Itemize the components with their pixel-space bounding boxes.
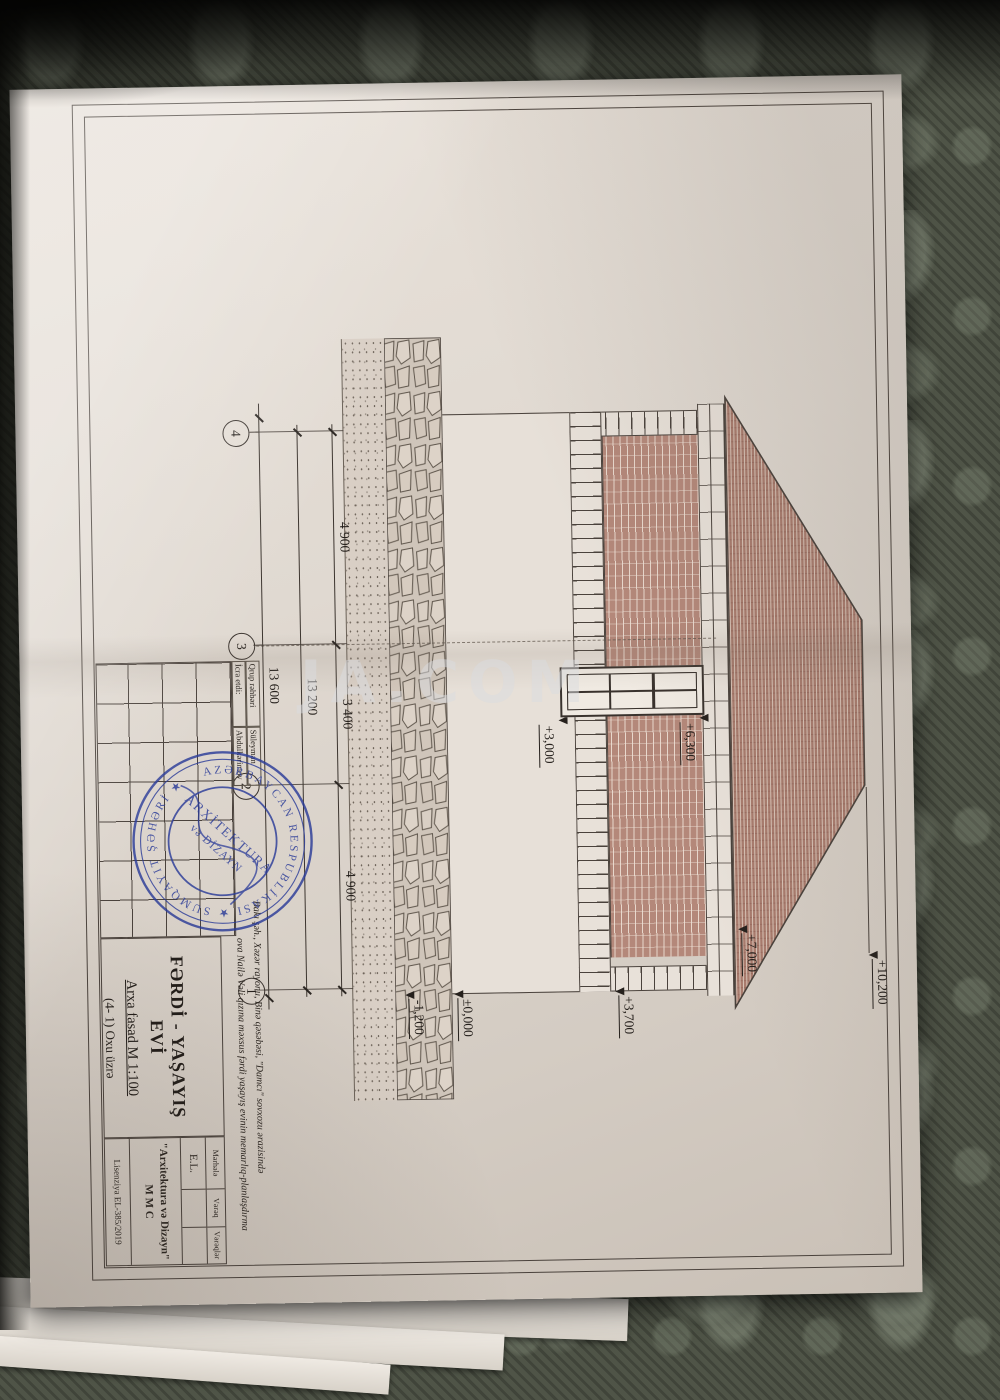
company-name: "Arxitektura və Dizayn" xyxy=(156,1138,170,1264)
view-title: Arxa fasad M 1:100 xyxy=(121,939,141,1137)
titleblock-title-cell: FƏRDİ - YAŞAYIŞ EVİ Arxa fasad M 1:100 (… xyxy=(100,936,224,1138)
stage-value: E.L. xyxy=(181,1138,206,1191)
svg-text:AZƏRBAYCAN RESPUBLİKASI ★ SUMQ: AZƏRBAYCAN RESPUBLİKASI ★ SUMQAYIT ŞƏHƏR… xyxy=(127,746,318,937)
role-label: Qrup rəhbəri xyxy=(245,661,260,727)
stamp-ring-text: AZƏRBAYCAN RESPUBLİKASI ★ SUMQAYIT ŞƏHƏR… xyxy=(127,746,318,937)
elevation-value: ±0,000 xyxy=(457,998,476,1041)
elevation-value: -1,200 xyxy=(408,999,427,1039)
photo-of-drawing: 4 900 3 400 4 900 13 200 13 600 4 3 2 1 … xyxy=(0,0,1000,1400)
dimension-label: 13 600 xyxy=(264,667,283,704)
elevation-triangle-icon xyxy=(615,987,624,995)
titleblock-stage-table: Mərhələ Vərəq Vərəqlər E.L. "Arxitektura… xyxy=(104,1136,227,1266)
object-title: FƏRDİ - YAŞAYIŞ EVİ xyxy=(144,938,189,1137)
elevation-triangle-icon xyxy=(405,991,414,999)
dimension-label: 4 900 xyxy=(334,522,353,553)
window-pane xyxy=(612,692,653,708)
license-number: Lisenziya EL-385/2019 xyxy=(105,1139,131,1265)
elevation-value: +3,700 xyxy=(618,995,637,1038)
window-pane xyxy=(655,673,696,689)
role-label: İcra etdi: xyxy=(231,661,246,727)
company-type: M M C xyxy=(141,1139,155,1265)
sheets-column-header: Vərəqlər xyxy=(207,1227,225,1264)
top-left-shadow xyxy=(0,0,480,220)
sheet-column-header: Vərəq xyxy=(207,1189,225,1227)
sheets-value xyxy=(183,1227,207,1264)
view-subtitle: (4- 1) Oxu üzrə xyxy=(100,939,119,1137)
elevation-triangle-icon xyxy=(738,925,747,933)
sheet-value xyxy=(182,1190,206,1228)
elevation-triangle-icon xyxy=(558,716,567,724)
dimension-label: 4 900 xyxy=(340,871,359,902)
axis-leader xyxy=(249,432,259,433)
elevation-value: +6,300 xyxy=(680,722,699,765)
elevation-triangle-icon xyxy=(869,951,878,959)
elevation-value: +7,000 xyxy=(741,933,760,976)
stage-column-header: Mərhələ xyxy=(206,1137,225,1189)
window-pane xyxy=(611,674,652,690)
elevation-value: +10,200 xyxy=(872,959,891,1009)
elevation-triangle-icon xyxy=(699,714,708,722)
elevation-value: +3,000 xyxy=(539,724,558,767)
photo-watermark: JA.COM xyxy=(300,648,593,716)
elevation-triangle-icon xyxy=(454,990,463,998)
window-pane xyxy=(655,691,696,707)
